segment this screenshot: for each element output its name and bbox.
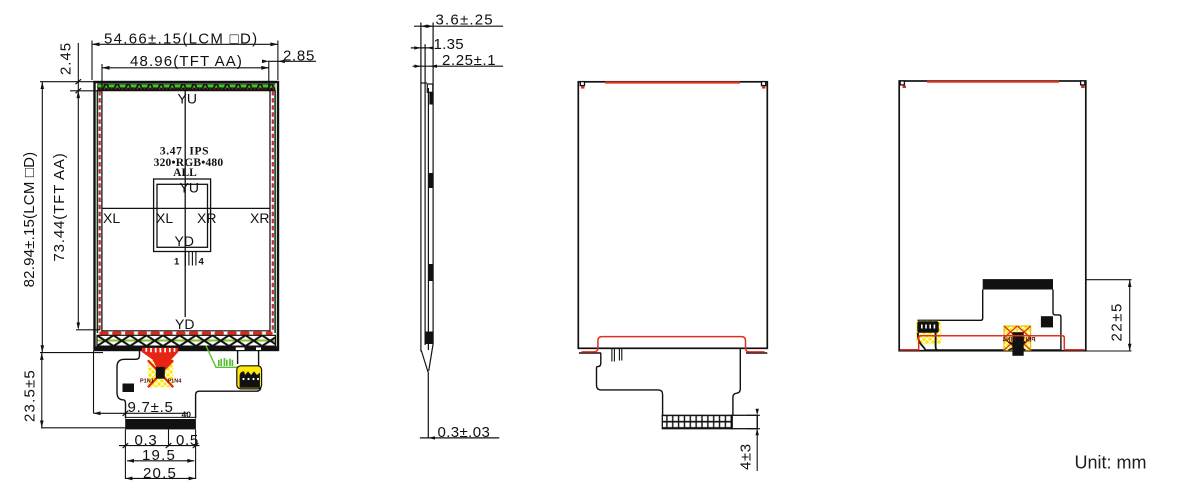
svg-text:XR: XR — [250, 210, 269, 226]
svg-text:PIN1→PIN4: PIN1→PIN4 — [1002, 337, 1035, 343]
svg-text:YD: YD — [175, 316, 194, 332]
svg-text:XR: XR — [197, 210, 216, 226]
svg-text:4: 4 — [199, 257, 205, 268]
svg-text:YU: YU — [178, 91, 197, 107]
svg-text:73.44(TFT AA): 73.44(TFT AA) — [51, 152, 68, 261]
svg-text:22±5: 22±5 — [1108, 302, 1125, 341]
svg-text:9.7±.5: 9.7±.5 — [128, 399, 174, 416]
svg-text:1.35: 1.35 — [434, 36, 464, 53]
svg-text:ALL: ALL — [173, 167, 197, 179]
svg-text:XL: XL — [103, 210, 120, 226]
svg-text:20.5: 20.5 — [143, 465, 177, 482]
svg-text:XL: XL — [156, 210, 173, 226]
svg-text:YU: YU — [180, 180, 199, 196]
svg-text:54.66±.15(LCM □D): 54.66±.15(LCM □D) — [104, 31, 258, 48]
svg-text:2.25±.1: 2.25±.1 — [442, 52, 496, 69]
svg-text:3.47 IPS: 3.47 IPS — [160, 146, 209, 158]
svg-text:4±3: 4±3 — [738, 443, 755, 470]
svg-text:82.94±.15(LCM □D): 82.94±.15(LCM □D) — [21, 152, 38, 288]
svg-text:2.45: 2.45 — [58, 42, 75, 75]
svg-text:3.6±.25: 3.6±.25 — [436, 12, 494, 29]
svg-text:P1N1: P1N1 — [140, 379, 154, 385]
svg-text:19.5: 19.5 — [142, 447, 176, 464]
svg-text:0.3±.03: 0.3±.03 — [438, 424, 491, 441]
svg-text:YD: YD — [175, 233, 194, 249]
svg-text:P1N4: P1N4 — [168, 379, 183, 385]
svg-text:1: 1 — [174, 257, 180, 268]
svg-text:23.5±5: 23.5±5 — [22, 369, 39, 422]
svg-text:48.96(TFT AA): 48.96(TFT AA) — [130, 53, 243, 70]
svg-text:2.85: 2.85 — [283, 47, 315, 64]
svg-text:Unit: mm: Unit: mm — [1075, 453, 1147, 473]
